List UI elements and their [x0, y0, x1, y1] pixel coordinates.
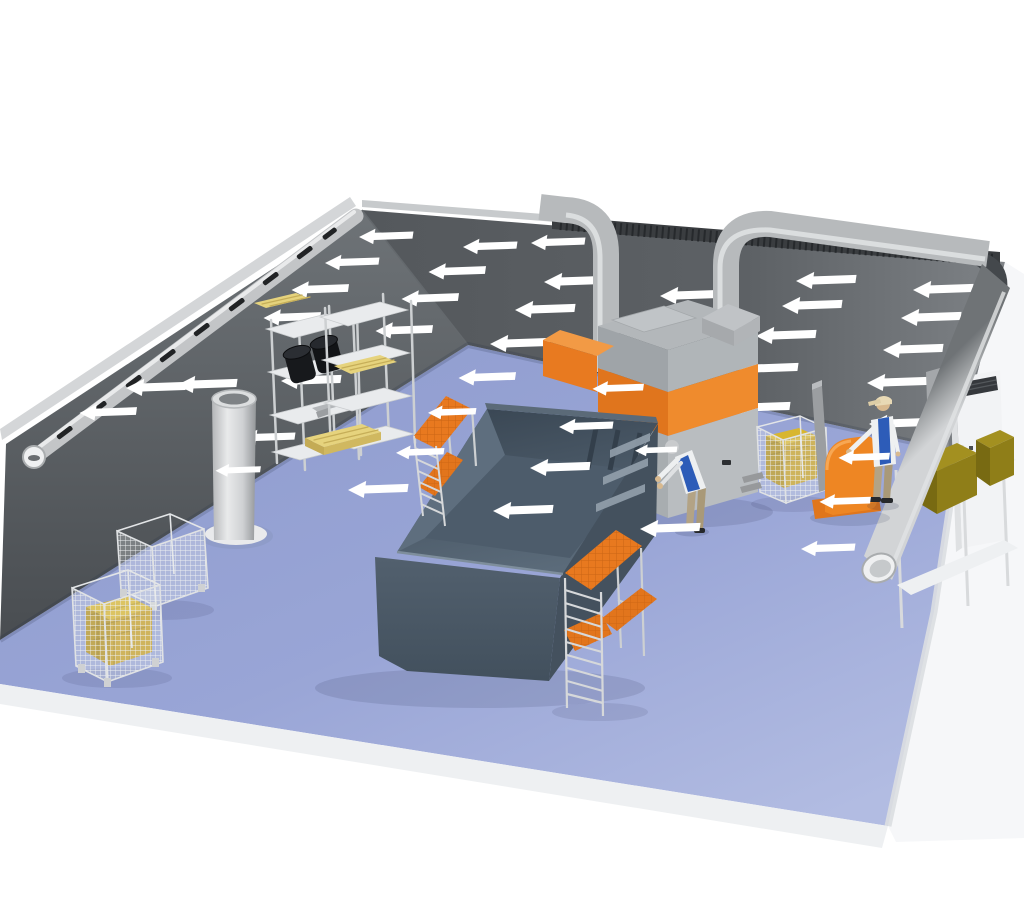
worker2-hand2 — [896, 452, 901, 457]
worker2-shoe2 — [881, 498, 893, 503]
silo-top-opening — [219, 394, 249, 405]
intake-duct-mouth — [28, 455, 40, 461]
tank-front-face — [375, 557, 560, 681]
scene-canvas — [0, 0, 1024, 921]
worker1-hand — [655, 476, 661, 482]
olive-box-b — [976, 430, 1014, 486]
worker1-hand2 — [657, 483, 663, 489]
factory-ventilation-illustration — [0, 0, 1024, 921]
